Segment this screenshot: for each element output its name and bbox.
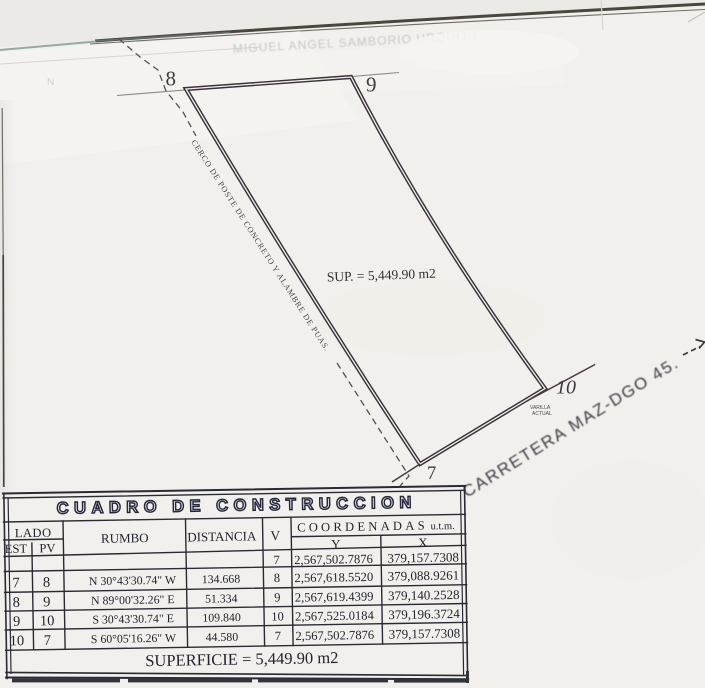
svg-text:N: N (47, 77, 54, 88)
svg-text:8: 8 (166, 67, 177, 91)
svg-text:7: 7 (44, 633, 52, 649)
svg-text:379,157.7308: 379,157.7308 (389, 625, 461, 641)
svg-text:7: 7 (12, 575, 20, 591)
svg-text:LADO: LADO (15, 526, 52, 541)
svg-text:7: 7 (427, 464, 436, 484)
svg-text:8: 8 (43, 575, 51, 591)
svg-text:EST: EST (5, 542, 28, 556)
svg-text:RUMBO: RUMBO (101, 530, 149, 546)
svg-text:PV: PV (39, 541, 55, 555)
svg-text:51.334: 51.334 (205, 591, 238, 606)
svg-text:8: 8 (13, 595, 21, 611)
svg-text:S 60°05'16.26" W: S 60°05'16.26" W (91, 631, 177, 646)
svg-text:44.580: 44.580 (206, 630, 239, 645)
svg-text:V: V (270, 528, 280, 543)
svg-text:S 30°43'30.74" E: S 30°43'30.74" E (92, 611, 174, 626)
svg-text:2,567,619.4399: 2,567,619.4399 (295, 589, 374, 604)
svg-text:2,567,618.5520: 2,567,618.5520 (294, 570, 373, 585)
svg-text:9: 9 (366, 73, 377, 97)
svg-text:379,140.2528: 379,140.2528 (388, 587, 460, 603)
svg-text:X: X (418, 535, 428, 550)
svg-text:109.840: 109.840 (202, 610, 241, 625)
svg-text:9: 9 (43, 594, 51, 610)
svg-text:10: 10 (10, 633, 25, 649)
svg-text:2,567,502.7876: 2,567,502.7876 (294, 552, 373, 567)
svg-text:10: 10 (40, 613, 55, 629)
svg-text:COORDENADAS u.t.m.: COORDENADAS u.t.m. (297, 518, 455, 535)
svg-text:7: 7 (275, 629, 281, 643)
svg-text:DISTANCIA: DISTANCIA (187, 528, 257, 544)
svg-text:134.668: 134.668 (202, 572, 241, 587)
svg-text:7: 7 (273, 553, 279, 567)
svg-text:379,196.3724: 379,196.3724 (388, 606, 460, 622)
svg-text:10: 10 (271, 609, 284, 623)
svg-text:Y: Y (331, 536, 341, 551)
svg-text:N 89°00'32.26" E: N 89°00'32.26" E (91, 592, 175, 607)
svg-text:9: 9 (13, 614, 21, 630)
svg-text:N 30°43'30.74" W: N 30°43'30.74" W (89, 573, 177, 588)
svg-text:2,567,525.0184: 2,567,525.0184 (295, 608, 375, 623)
svg-text:ACTUAL: ACTUAL (532, 411, 552, 417)
svg-text:SUPERFICIE = 5,449.90 m2: SUPERFICIE = 5,449.90 m2 (145, 648, 338, 670)
svg-text:2,567,502.7876: 2,567,502.7876 (295, 628, 374, 643)
svg-text:9: 9 (274, 590, 280, 604)
svg-text:8: 8 (274, 571, 280, 585)
svg-text:379,088.9261: 379,088.9261 (388, 567, 460, 583)
svg-text:379,157.7308: 379,157.7308 (387, 549, 459, 565)
